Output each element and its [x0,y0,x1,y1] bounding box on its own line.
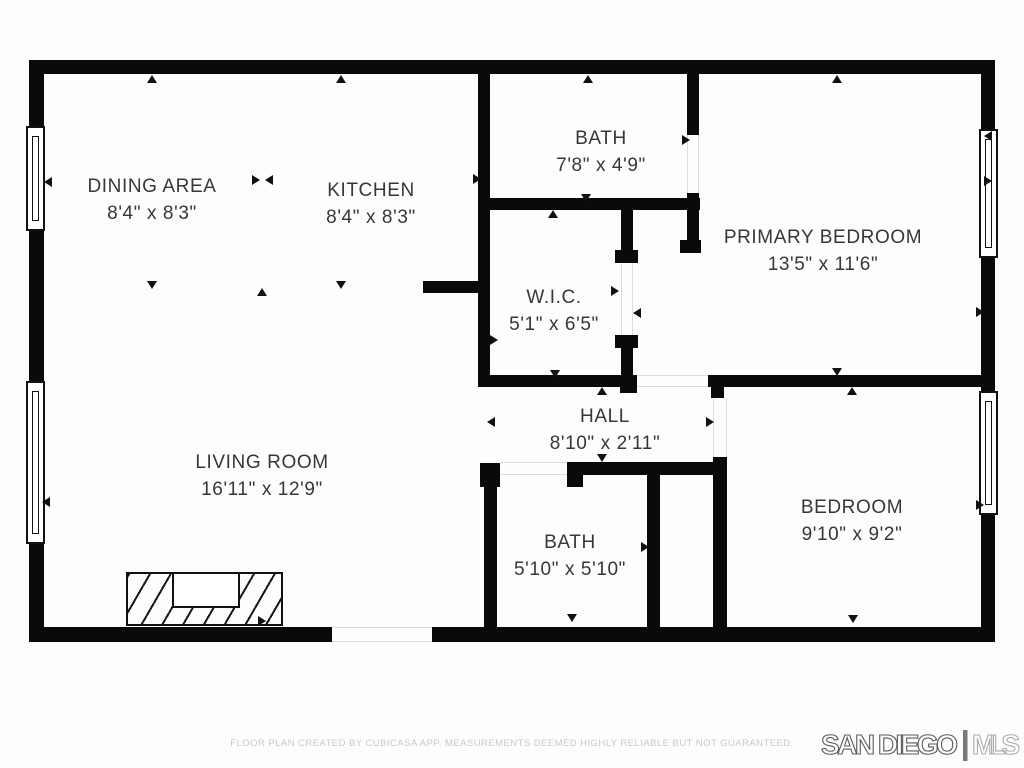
window-pane [985,139,992,248]
window-pane [32,391,39,534]
logo-secondary-text: MLS [972,729,1020,760]
door-opening-wic [621,263,633,335]
wall-exterior-bottom-right [432,627,995,642]
opening-marker-icon [550,370,560,378]
wall-bath2-left [484,463,497,627]
opening-marker-icon [147,281,157,289]
wall-exterior-bottom-left [29,627,332,642]
room-label-bath-top: BATH 7'8" x 4'9" [556,125,646,179]
opening-marker-icon [567,614,577,622]
room-dimensions: 7'8" x 4'9" [556,152,646,179]
wall-kitchen-wic-divider [478,74,490,387]
opening-marker-icon [42,497,50,507]
room-dimensions: 13'5" x 11'6" [724,251,922,278]
opening-marker-icon [581,194,591,202]
opening-marker-icon [682,135,690,145]
wall-cap [567,462,583,487]
wall-cap [615,335,638,348]
opening-marker-icon [473,174,481,184]
wall-bedroom-top [708,375,981,387]
room-dimensions: 8'4" x 8'3" [87,200,216,227]
window-dining [26,126,45,231]
window-pane [985,401,992,505]
opening-marker-icon [252,175,260,185]
wall-kitchen-stub [423,281,478,293]
opening-marker-icon [548,210,558,218]
floor-plan: DINING AREA 8'4" x 8'3" KITCHEN 8'4" x 8… [0,0,1024,768]
room-dimensions: 8'10" x 2'11" [550,430,661,457]
room-name: BATH [514,529,626,556]
opening-marker-icon [258,616,266,626]
opening-marker-icon [257,288,267,296]
door-opening-bath2 [500,462,567,475]
opening-marker-icon [147,75,157,83]
opening-marker-icon [583,75,593,83]
room-dimensions: 5'10" x 5'10" [514,556,626,583]
room-label-primary-bedroom: PRIMARY BEDROOM 13'5" x 11'6" [724,224,922,278]
fireplace-firebox [172,572,240,608]
opening-marker-icon [847,387,857,395]
opening-marker-icon [641,542,649,552]
room-label-hall: HALL 8'10" x 2'11" [550,403,661,457]
room-label-bedroom: BEDROOM 9'10" x 9'2" [801,494,903,548]
opening-marker-icon [633,308,641,318]
opening-marker-icon [976,500,984,510]
window-pane [32,136,39,221]
room-label-kitchen: KITCHEN 8'4" x 8'3" [326,177,416,231]
opening-marker-icon [984,176,992,186]
wall-cap [615,250,638,263]
opening-marker-icon [832,368,842,376]
opening-marker-icon [984,131,992,141]
opening-marker-icon [848,615,858,623]
wall-exterior-top [30,60,995,74]
opening-marker-icon [487,417,495,427]
room-dimensions: 8'4" x 8'3" [326,204,416,231]
wall-hall-bottom [570,462,713,475]
room-name: BATH [556,125,646,152]
logo-separator-bar [963,730,968,761]
room-name: HALL [550,403,661,430]
opening-marker-icon [265,175,273,185]
room-name: PRIMARY BEDROOM [724,224,922,251]
room-name: DINING AREA [87,173,216,200]
room-dimensions: 9'10" x 9'2" [801,521,903,548]
wall-bedroom-left [713,457,727,627]
window-bedroom [979,391,998,515]
wall-cap [680,240,701,253]
disclaimer-text: FLOOR PLAN CREATED BY CUBICASA APP. MEAS… [230,738,793,749]
opening-marker-icon [336,75,346,83]
opening-marker-icon [611,286,619,296]
sandiego-mls-logo: SAN DIEGO MLS [820,727,1022,765]
door-opening-bedroom [713,398,727,457]
opening-marker-icon [336,281,346,289]
wall-cap [620,387,637,393]
room-label-wic: W.I.C. 5'1" x 6'5" [509,284,599,338]
room-dimensions: 16'11" x 12'9" [195,476,328,503]
room-name: LIVING ROOM [195,449,328,476]
window-living [26,381,45,544]
opening-marker-icon [597,387,607,395]
logo-primary-text: SAN DIEGO [821,729,958,760]
room-label-living-room: LIVING ROOM 16'11" x 12'9" [195,449,328,503]
window-primary-bedroom [979,129,998,258]
room-label-dining-area: DINING AREA 8'4" x 8'3" [87,173,216,227]
wall-bath-primary-upper [687,74,699,135]
door-opening-entry [332,627,432,642]
wall-cap [711,387,724,398]
wall-cap [480,463,500,487]
opening-marker-icon [44,177,52,187]
room-label-bath-bottom: BATH 5'10" x 5'10" [514,529,626,583]
room-name: W.I.C. [509,284,599,311]
door-opening-primary-bedroom [637,375,708,387]
wall-bath-primary-lower [687,193,699,240]
wall-wic-right-upper [621,210,633,250]
opening-marker-icon [706,417,714,427]
opening-marker-icon [832,75,842,83]
room-name: KITCHEN [326,177,416,204]
opening-marker-icon [490,335,498,345]
room-name: BEDROOM [801,494,903,521]
opening-marker-icon [976,307,984,317]
room-dimensions: 5'1" x 6'5" [509,311,599,338]
